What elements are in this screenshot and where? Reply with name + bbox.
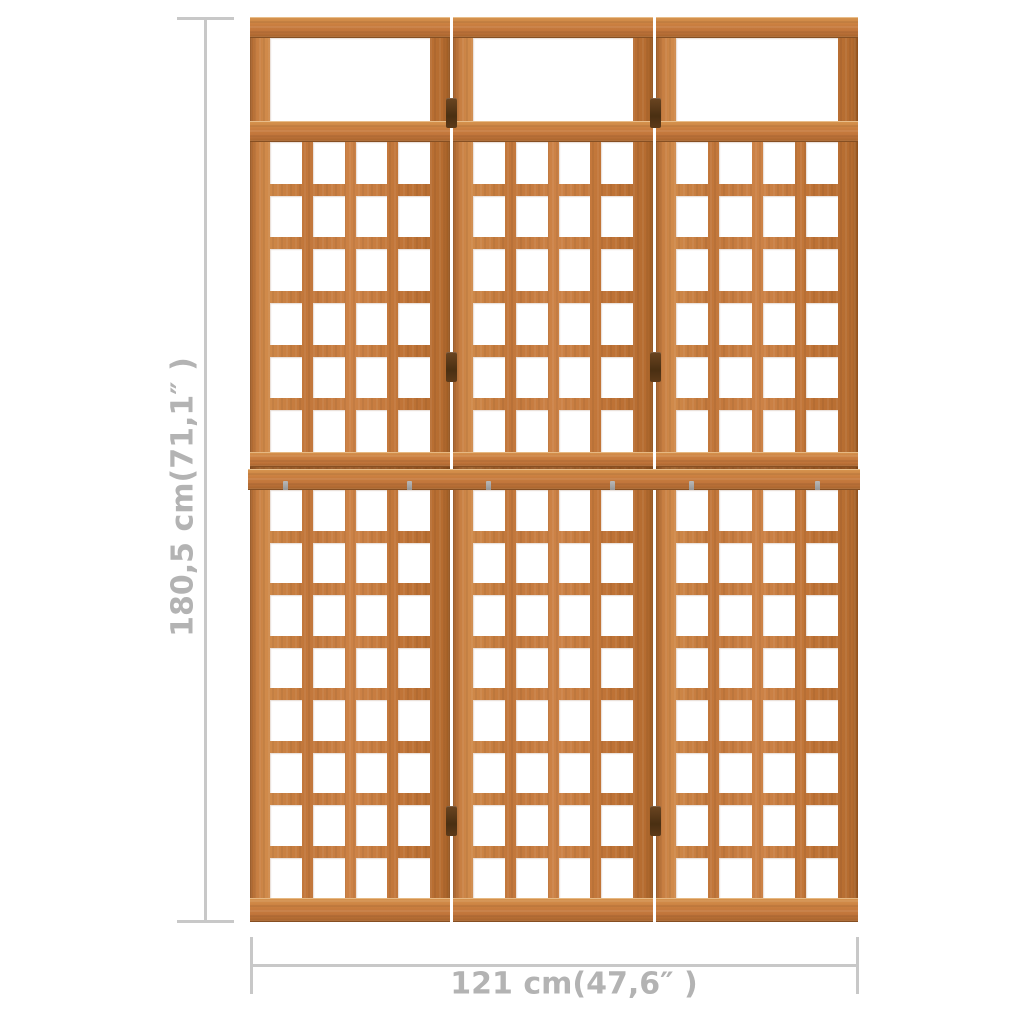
lattice-opening (356, 543, 388, 584)
lattice-opening (559, 303, 591, 345)
lattice-opening (763, 648, 795, 689)
lattice-opening (270, 490, 302, 531)
lattice-opening (313, 303, 345, 345)
width-dimension-cap-right (856, 937, 859, 994)
lattice-opening (763, 753, 795, 794)
lattice-opening (270, 196, 302, 238)
lattice-opening (516, 249, 548, 291)
lattice-opening (356, 490, 388, 531)
upper-section-bottom-rail (656, 452, 858, 467)
lattice-opening (398, 357, 430, 399)
lattice-opening (676, 357, 708, 399)
upper-lattice (676, 142, 838, 452)
lattice-opening (270, 648, 302, 689)
lattice-opening (676, 595, 708, 636)
lattice-opening (559, 858, 591, 899)
lattice-opening (473, 303, 505, 345)
lattice-opening (356, 410, 388, 452)
lattice-opening (473, 753, 505, 794)
lattice-opening (313, 410, 345, 452)
lattice-opening (473, 858, 505, 899)
lattice-opening (356, 142, 388, 184)
lattice-opening (356, 303, 388, 345)
lattice-opening (601, 410, 633, 452)
height-dimension-line (204, 18, 207, 922)
lattice-opening (313, 858, 345, 899)
width-dimension-cap-left (250, 937, 253, 994)
lattice-opening (763, 142, 795, 184)
lattice-opening (398, 700, 430, 741)
lattice-opening (516, 303, 548, 345)
lattice-opening (473, 142, 505, 184)
lattice-opening (719, 805, 751, 846)
lattice-opening (356, 648, 388, 689)
lattice-opening (806, 858, 838, 899)
lattice-opening (559, 543, 591, 584)
trellis-panel-2 (453, 17, 653, 922)
lattice-opening (313, 357, 345, 399)
lattice-opening (313, 753, 345, 794)
lattice-opening (270, 410, 302, 452)
lattice-opening (559, 249, 591, 291)
lattice-opening (719, 196, 751, 238)
lattice-opening (270, 858, 302, 899)
lattice-opening (676, 753, 708, 794)
lattice-opening (270, 142, 302, 184)
lattice-opening (601, 753, 633, 794)
lattice-opening (270, 700, 302, 741)
lattice-opening (313, 805, 345, 846)
lattice-opening (806, 490, 838, 531)
lattice-opening (676, 196, 708, 238)
product-image: 180,5 cm(71,1″ ) 121 cm(47,6″ ) (0, 0, 1024, 1024)
lattice-opening (473, 490, 505, 531)
lattice-opening (313, 249, 345, 291)
lower-lattice (676, 490, 838, 898)
lattice-opening (719, 543, 751, 584)
lattice-opening (516, 700, 548, 741)
lattice-opening (719, 490, 751, 531)
lattice-opening (719, 303, 751, 345)
lattice-opening (719, 595, 751, 636)
lattice-opening (516, 357, 548, 399)
lattice-opening (601, 357, 633, 399)
lattice-opening (473, 805, 505, 846)
hinge (446, 352, 457, 382)
lattice-opening (516, 648, 548, 689)
trellis-panel-1 (250, 17, 450, 922)
lattice-opening (473, 196, 505, 238)
lattice-opening (763, 357, 795, 399)
lattice-opening (676, 543, 708, 584)
lattice-opening (601, 490, 633, 531)
lattice-opening (763, 196, 795, 238)
hinge (650, 806, 661, 836)
lattice-opening (763, 858, 795, 899)
lower-section-top-rail (654, 469, 860, 490)
lattice-opening (398, 249, 430, 291)
upper-section-bottom-rail (250, 452, 450, 467)
upper-lattice (270, 142, 430, 452)
lattice-opening (806, 543, 838, 584)
top-rail (656, 17, 858, 38)
lattice-opening (601, 142, 633, 184)
lattice-opening (806, 805, 838, 846)
height-dimension-cap-top (177, 17, 234, 20)
lattice-opening (806, 357, 838, 399)
top-rail (250, 17, 450, 38)
lattice-opening (559, 648, 591, 689)
lattice-opening (473, 410, 505, 452)
lattice-opening (806, 700, 838, 741)
lattice-opening (601, 595, 633, 636)
lattice-opening (356, 595, 388, 636)
lattice-opening (559, 700, 591, 741)
lattice-opening (398, 196, 430, 238)
lattice-opening (806, 249, 838, 291)
height-dimension-cap-bottom (177, 920, 234, 923)
lower-section-top-rail (451, 469, 655, 490)
lattice-opening (719, 142, 751, 184)
panel-top-opening (473, 38, 633, 121)
lattice-opening (516, 490, 548, 531)
lattice-opening (313, 196, 345, 238)
lattice-opening (313, 142, 345, 184)
lattice-opening (676, 858, 708, 899)
upper-section-bottom-rail (453, 452, 653, 467)
lattice-opening (719, 249, 751, 291)
lattice-opening (719, 753, 751, 794)
lattice-opening (719, 410, 751, 452)
hinge (650, 98, 661, 128)
lattice-opening (719, 858, 751, 899)
lattice-opening (601, 303, 633, 345)
lattice-opening (601, 648, 633, 689)
lattice-opening (763, 490, 795, 531)
lattice-opening (601, 858, 633, 899)
lattice-opening (806, 196, 838, 238)
lattice-opening (398, 543, 430, 584)
panel-top-opening (270, 38, 430, 121)
lattice-opening (719, 648, 751, 689)
lattice-opening (516, 543, 548, 584)
rail-under-opening (250, 121, 450, 142)
lattice-opening (601, 543, 633, 584)
lattice-opening (516, 595, 548, 636)
lattice-opening (473, 357, 505, 399)
lattice-opening (516, 196, 548, 238)
lattice-opening (676, 700, 708, 741)
rail-under-opening (656, 121, 858, 142)
lattice-opening (806, 753, 838, 794)
lattice-opening (398, 303, 430, 345)
lattice-opening (356, 805, 388, 846)
lattice-opening (559, 490, 591, 531)
lattice-opening (473, 249, 505, 291)
lattice-opening (473, 595, 505, 636)
lattice-opening (676, 249, 708, 291)
lattice-opening (398, 142, 430, 184)
lattice-opening (398, 753, 430, 794)
lattice-opening (356, 357, 388, 399)
lattice-opening (763, 543, 795, 584)
lattice-opening (559, 595, 591, 636)
rail-under-opening (453, 121, 653, 142)
lattice-opening (676, 303, 708, 345)
lattice-opening (270, 303, 302, 345)
lattice-opening (270, 543, 302, 584)
lattice-opening (763, 249, 795, 291)
lattice-opening (270, 595, 302, 636)
upper-lattice (473, 142, 633, 452)
lattice-opening (356, 196, 388, 238)
lattice-opening (806, 410, 838, 452)
height-dimension-label: 180,5 cm(71,1″ ) (166, 357, 201, 637)
lattice-opening (601, 249, 633, 291)
hinge (650, 352, 661, 382)
lattice-opening (559, 357, 591, 399)
lattice-opening (559, 410, 591, 452)
hinge (446, 806, 457, 836)
lattice-opening (313, 700, 345, 741)
lattice-opening (516, 858, 548, 899)
lattice-opening (398, 858, 430, 899)
lattice-opening (719, 357, 751, 399)
lattice-opening (601, 700, 633, 741)
lattice-opening (270, 753, 302, 794)
lattice-opening (601, 196, 633, 238)
lower-section-top-rail (248, 469, 452, 490)
lattice-opening (398, 410, 430, 452)
lattice-opening (559, 753, 591, 794)
lattice-opening (601, 805, 633, 846)
lattice-opening (806, 648, 838, 689)
top-rail (453, 17, 653, 38)
lattice-opening (270, 249, 302, 291)
lattice-opening (313, 595, 345, 636)
lattice-opening (398, 595, 430, 636)
lattice-opening (398, 648, 430, 689)
bottom-rail (250, 898, 450, 922)
lower-lattice (270, 490, 430, 898)
lattice-opening (516, 753, 548, 794)
lattice-opening (763, 595, 795, 636)
lattice-opening (559, 805, 591, 846)
trellis-panel-3 (656, 17, 858, 922)
lattice-opening (676, 142, 708, 184)
width-dimension-label: 121 cm(47,6″ ) (450, 967, 697, 1002)
lattice-opening (473, 648, 505, 689)
lattice-opening (676, 490, 708, 531)
lattice-opening (270, 357, 302, 399)
lattice-opening (676, 648, 708, 689)
lattice-opening (473, 700, 505, 741)
lattice-opening (313, 543, 345, 584)
lattice-opening (356, 700, 388, 741)
lattice-opening (313, 648, 345, 689)
bottom-rail (453, 898, 653, 922)
lattice-opening (356, 753, 388, 794)
lattice-opening (516, 410, 548, 452)
hinge (446, 98, 457, 128)
lattice-opening (763, 805, 795, 846)
lattice-opening (806, 595, 838, 636)
lattice-opening (559, 142, 591, 184)
lattice-opening (676, 410, 708, 452)
lattice-opening (763, 303, 795, 345)
lower-lattice (473, 490, 633, 898)
panel-top-opening (676, 38, 838, 121)
lattice-opening (719, 700, 751, 741)
lattice-opening (313, 490, 345, 531)
lattice-opening (806, 303, 838, 345)
lattice-opening (398, 805, 430, 846)
lattice-opening (270, 805, 302, 846)
lattice-opening (356, 858, 388, 899)
lattice-opening (806, 142, 838, 184)
lattice-opening (559, 196, 591, 238)
lattice-opening (763, 410, 795, 452)
lattice-opening (356, 249, 388, 291)
bottom-rail (656, 898, 858, 922)
lattice-opening (473, 543, 505, 584)
lattice-opening (516, 142, 548, 184)
lattice-opening (676, 805, 708, 846)
lattice-opening (763, 700, 795, 741)
lattice-opening (516, 805, 548, 846)
lattice-opening (398, 490, 430, 531)
